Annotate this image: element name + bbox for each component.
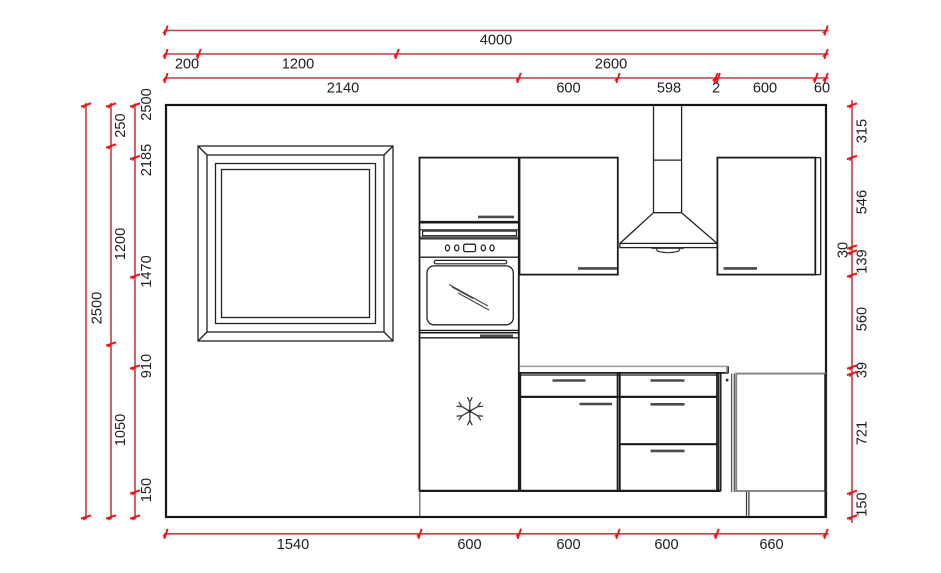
svg-text:598: 598 [657,81,681,97]
svg-text:1050: 1050 [113,414,129,446]
svg-text:2140: 2140 [327,81,359,97]
svg-text:4000: 4000 [480,33,512,49]
svg-text:600: 600 [556,81,580,97]
svg-text:2500: 2500 [139,88,155,120]
svg-text:560: 560 [855,307,871,331]
svg-text:315: 315 [855,119,871,143]
svg-text:2500: 2500 [90,292,106,324]
svg-text:1200: 1200 [113,228,129,260]
svg-text:150: 150 [139,478,155,502]
svg-text:200: 200 [175,57,199,73]
svg-text:2600: 2600 [595,57,627,73]
svg-text:600: 600 [457,537,481,553]
svg-text:600: 600 [654,537,678,553]
svg-text:30: 30 [836,242,852,258]
svg-text:39: 39 [855,362,871,378]
svg-text:60: 60 [814,81,830,97]
svg-text:660: 660 [759,537,783,553]
svg-text:250: 250 [113,113,129,137]
svg-text:1200: 1200 [282,57,314,73]
svg-text:1470: 1470 [139,255,155,287]
svg-text:600: 600 [753,81,777,97]
svg-text:2: 2 [712,81,720,97]
svg-text:546: 546 [855,190,871,214]
svg-text:2185: 2185 [139,144,155,176]
svg-text:600: 600 [556,537,580,553]
svg-text:150: 150 [855,492,871,516]
svg-text:721: 721 [855,421,871,445]
svg-text:139: 139 [855,249,871,273]
svg-text:1540: 1540 [277,537,309,553]
svg-text:910: 910 [139,354,155,378]
